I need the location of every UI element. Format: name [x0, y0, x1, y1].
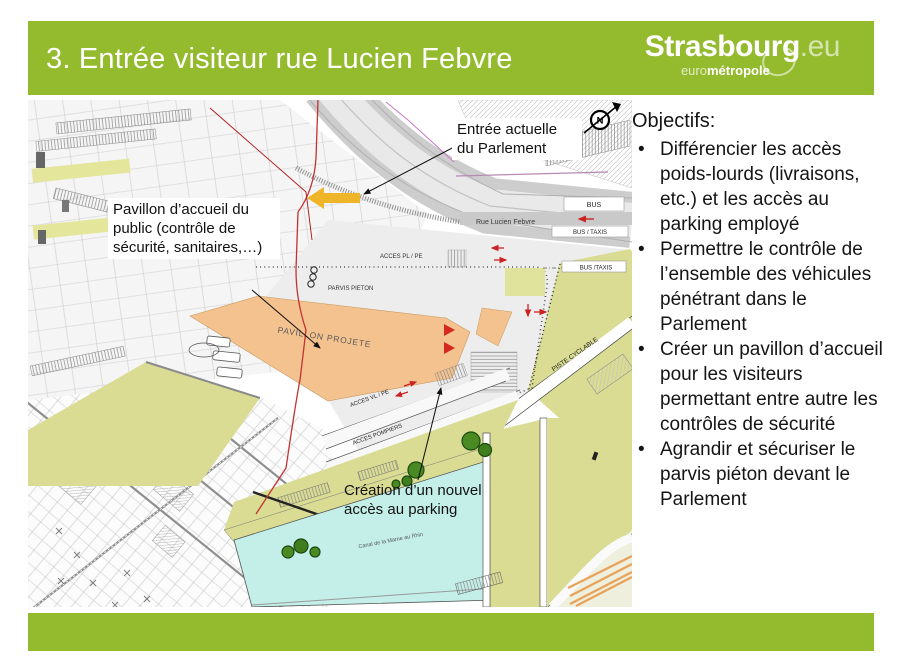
- header-bar: 3. Entrée visiteur rue Lucien Febvre Str…: [28, 21, 874, 95]
- strasbourg-logo: Strasbourg.eu eurométropole: [645, 32, 840, 77]
- green-square: [505, 268, 545, 296]
- bus-taxis-label: BUS / TAXIS: [573, 230, 607, 236]
- slide: 3. Entrée visiteur rue Lucien Febvre Str…: [0, 0, 902, 659]
- bus-label: BUS: [587, 202, 602, 209]
- parvis-label: PARVIS PIETON: [328, 286, 373, 292]
- crosswalk-north: [448, 250, 466, 267]
- bus-taxis2-label: BUS /TAXIS: [580, 266, 613, 272]
- objective-item: Agrandir et sécuriser le parvis piéton d…: [632, 437, 886, 512]
- logo-tld: .eu: [800, 30, 840, 63]
- objectives-list: Différencier les accès poids-lourds (liv…: [632, 137, 886, 512]
- objective-item: Créer un pavillon d’accueil pour les vis…: [632, 337, 886, 437]
- annotation-pavilion: Pavillon d’accueil du public (contrôle d…: [108, 198, 280, 259]
- objective-item: Différencier les accès poids-lourds (liv…: [632, 137, 886, 237]
- objectives-heading: Objectifs:: [632, 110, 886, 133]
- objectives-panel: Objectifs: Différencier les accès poids-…: [632, 110, 886, 512]
- objective-item: Permettre le contrôle de l’ensemble des …: [632, 237, 886, 337]
- site-plan: PISTE CYCLABLE BUS BUS / TAXIS Rue Lucie…: [28, 100, 632, 607]
- slide-title: 3. Entrée visiteur rue Lucien Febvre: [46, 21, 513, 95]
- logo-subtitle: eurométropole: [645, 64, 840, 77]
- annotation-new-access: Création d’un nouvel accès au parking: [344, 481, 486, 519]
- street-name-label: Rue Lucien Febvre: [476, 219, 535, 226]
- footer-bar: [28, 613, 874, 651]
- acces-pl-label: ACCES PL / PE: [380, 254, 422, 260]
- logo-wordmark: Strasbourg.eu: [645, 32, 840, 62]
- annotation-current-entrance: Entrée actuelle du Parlement: [452, 118, 582, 160]
